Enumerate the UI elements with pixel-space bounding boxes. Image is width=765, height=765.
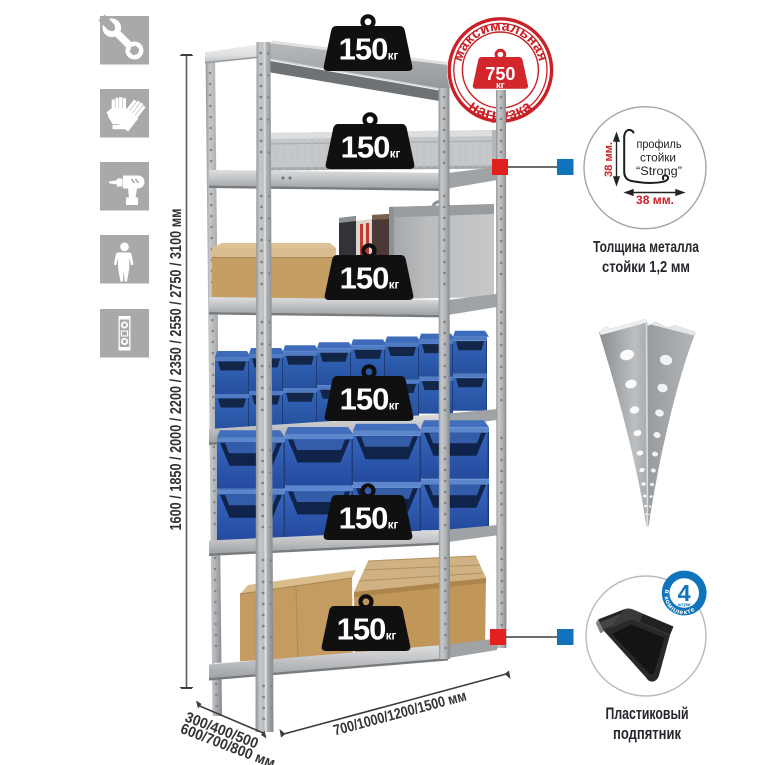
svg-text:подпятник: подпятник bbox=[613, 725, 682, 743]
svg-text:кг: кг bbox=[496, 80, 505, 91]
svg-text:профиль: профиль bbox=[637, 139, 682, 151]
svg-text:Пластиковый: Пластиковый bbox=[606, 705, 689, 723]
svg-text:38 мм.: 38 мм. bbox=[636, 195, 674, 207]
svg-text:штуки: штуки bbox=[678, 602, 691, 607]
svg-text:1600 / 1850 / 2000 / 2200 / 23: 1600 / 1850 / 2000 / 2200 / 2350 / 2550 … bbox=[168, 209, 185, 531]
svg-text:стойки: стойки bbox=[640, 153, 676, 165]
svg-text:38 мм.: 38 мм. bbox=[603, 142, 615, 177]
svg-text:стойки 1,2 мм: стойки 1,2 мм bbox=[602, 259, 690, 276]
svg-text:Толщина металла: Толщина металла bbox=[593, 239, 699, 256]
svg-text:“Strong”: “Strong” bbox=[636, 166, 682, 178]
